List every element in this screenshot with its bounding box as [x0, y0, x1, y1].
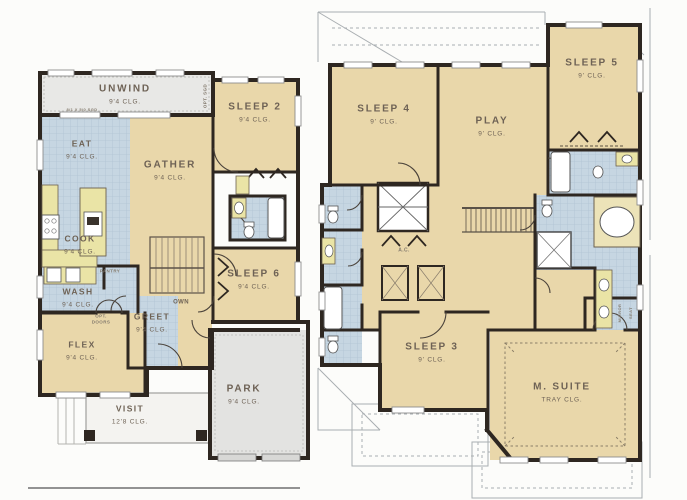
label-seat: SEAT — [629, 307, 633, 319]
room-label-play: PLAY9' CLG. — [476, 109, 509, 138]
roof-dashed-line — [332, 28, 540, 45]
window — [295, 262, 301, 296]
label-opt-doors-2: DOORS — [92, 321, 111, 326]
window — [319, 338, 325, 356]
range-icon — [42, 215, 59, 239]
window — [37, 330, 43, 360]
label-sgd-spec: 8/1 X 5/0 SGD — [67, 108, 98, 112]
room-sleep2 — [213, 80, 298, 172]
porch-post — [84, 430, 95, 441]
room-label-sleep5: SLEEP 59' CLG. — [565, 51, 619, 80]
second-floor-plan — [318, 8, 650, 498]
window — [37, 140, 43, 170]
window — [56, 392, 86, 398]
window — [392, 407, 424, 413]
toilet-icon — [542, 205, 552, 217]
toilet-icon — [328, 211, 338, 223]
room-label-sleep2: SLEEP 29'4 CLG. — [228, 95, 282, 124]
window — [37, 276, 43, 298]
roof-outline — [318, 368, 380, 430]
window — [156, 70, 184, 76]
room-label-flex: FLEX9'4 CLG. — [66, 333, 98, 362]
bathtub-icon — [324, 287, 342, 329]
sink-icon — [599, 279, 609, 291]
room-sleep5 — [548, 25, 640, 150]
label-ac: A.C. — [398, 248, 410, 254]
window — [319, 292, 325, 310]
window — [502, 62, 530, 68]
label-own-entry: OWN — [173, 300, 189, 307]
window — [637, 180, 643, 205]
window — [222, 77, 248, 83]
sink-icon — [325, 245, 333, 257]
toilet-icon — [328, 336, 338, 341]
washer-icon — [47, 268, 61, 282]
room-label-park: PARK9'4 CLG. — [227, 377, 262, 406]
island-appliance — [87, 217, 99, 225]
room-label-msuite: M. SUITETRAY CLG. — [533, 375, 591, 404]
label-opt-sgd: OPT. SGD — [204, 84, 209, 108]
window — [598, 457, 626, 463]
window — [396, 62, 424, 68]
porch-steps — [58, 398, 86, 444]
window — [500, 457, 528, 463]
room-label-sleep6: SLEEP 69'4 CLG. — [227, 262, 281, 291]
sink-icon — [599, 306, 609, 318]
window — [566, 22, 602, 28]
stair-shaft-icon — [378, 183, 428, 231]
sink-icon — [622, 155, 632, 163]
closet-shelf — [236, 176, 249, 194]
window — [319, 205, 325, 223]
window — [258, 77, 284, 83]
sink-icon — [235, 202, 244, 214]
window — [60, 112, 100, 118]
label-mirror: MIRROR — [618, 304, 622, 323]
room-label-wash: WASH9'4 CLG. — [62, 280, 94, 309]
room-label-sleep4: SLEEP 49' CLG. — [357, 97, 411, 126]
bathtub-icon — [551, 152, 570, 192]
window — [637, 60, 643, 92]
stairs-icon — [150, 237, 204, 293]
window — [540, 457, 568, 463]
window — [637, 285, 643, 310]
window — [118, 112, 170, 118]
toilet-icon — [328, 206, 338, 211]
garage-door — [262, 454, 300, 461]
room-label-cook: COOK9'4 CLG. — [64, 227, 96, 256]
room-play — [438, 65, 548, 235]
room-label-unwind: UNWIND9'4 CLG. — [99, 77, 151, 106]
room-label-greet: GREET9'4 CLG. — [134, 305, 170, 334]
toilet-icon — [593, 166, 603, 178]
garage-door — [218, 454, 256, 461]
garden-tub-icon — [600, 207, 634, 237]
roof-dashed-line — [362, 414, 478, 456]
toilet-icon — [244, 226, 254, 238]
floorplan-scan: UNWIND9'4 CLG. SLEEP 29'4 CLG. EAT9'4 CL… — [0, 0, 687, 500]
toilet-icon — [542, 200, 552, 205]
bathtub-icon — [268, 198, 284, 238]
window — [295, 96, 301, 126]
label-pantry: PANTRY — [100, 270, 120, 275]
toilet-icon — [328, 341, 338, 353]
room-label-eat: EAT9'4 CLG. — [66, 132, 98, 161]
room-label-gather: GATHER9'4 CLG. — [144, 153, 196, 182]
window — [452, 62, 480, 68]
window — [344, 62, 372, 68]
roof-outline — [318, 12, 545, 62]
room-label-visit: VISIT12'8 CLG. — [112, 397, 148, 426]
window — [48, 70, 74, 76]
window — [92, 70, 132, 76]
porch-post — [196, 430, 207, 441]
room-label-sleep3: SLEEP 39' CLG. — [405, 335, 459, 364]
